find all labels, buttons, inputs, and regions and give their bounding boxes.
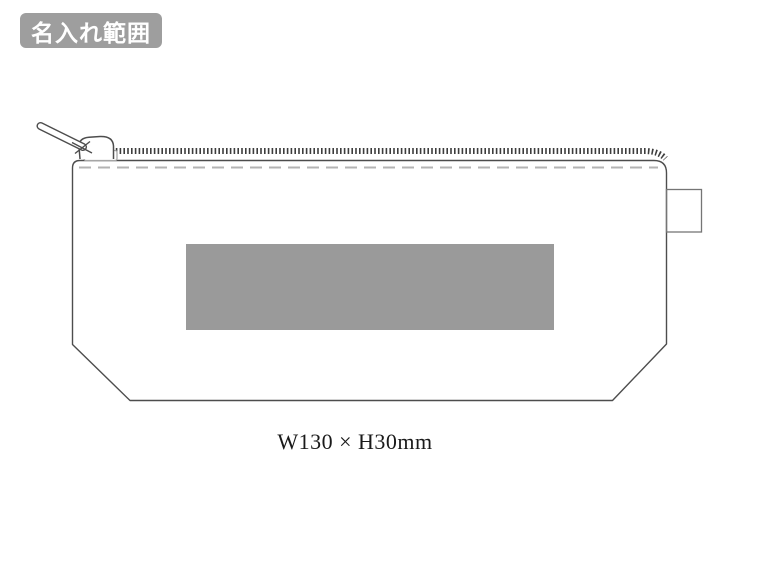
zipper-pull-strap-inner <box>41 126 84 147</box>
pouch-diagram <box>0 0 760 570</box>
zipper-teeth <box>112 151 666 159</box>
print-area-dimension-label: W130 × H30mm <box>0 429 710 455</box>
side-tab <box>667 190 702 233</box>
print-area-rect <box>186 244 554 330</box>
